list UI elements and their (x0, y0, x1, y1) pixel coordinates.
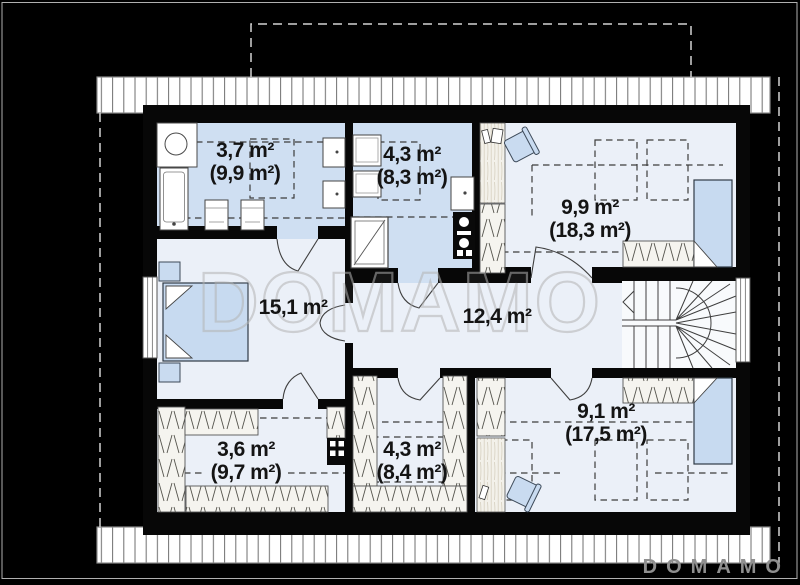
room-area-label-bedroom-bottom-right: 9,1 m² (17,5 m²) (526, 400, 686, 446)
area-value: 9,1 m² (526, 400, 686, 423)
room-area-label-wardrobe-bottom-mid: 4,3 m² (8,4 m²) (343, 438, 481, 484)
room-area-label-hall: 12,4 m² (437, 305, 557, 328)
domamo-logo: DOMAMO (643, 556, 790, 579)
area-value: 3,7 m² (165, 139, 325, 162)
area-value: 15,1 m² (233, 296, 353, 319)
area-total-value: (8,4 m²) (343, 461, 481, 484)
area-total-value: (8,3 m²) (343, 166, 481, 189)
window-right (736, 278, 750, 362)
nightstand-icon (159, 262, 180, 281)
area-value: 4,3 m² (343, 143, 481, 166)
room-area-label-bedroom-left: 15,1 m² (233, 296, 353, 319)
toilet-icon (205, 200, 228, 230)
dresser-icon (623, 241, 694, 267)
room-area-label-bathroom-top-left: 3,7 m² (9,9 m²) (165, 139, 325, 185)
sink-icon (323, 138, 345, 167)
room-area-label-wardrobe-bottom-left: 3,6 m² (9,7 m²) (166, 438, 326, 484)
area-total-value: (9,7 m²) (166, 461, 326, 484)
area-total-value: (17,5 m²) (526, 423, 686, 446)
floor-plan-drawing (0, 0, 800, 585)
window-left (143, 277, 157, 358)
sink-icon (323, 181, 345, 208)
area-value: 12,4 m² (437, 305, 557, 328)
floor-plan-canvas: DOMAMO 3,7 m² (9,9 m²) 4,3 m² (8,3 m²) 9… (0, 0, 800, 585)
wardrobe-icon (477, 378, 505, 436)
desk-icon (477, 438, 505, 512)
area-value: 4,3 m² (343, 438, 481, 461)
area-total-value: (9,9 m²) (165, 162, 325, 185)
room-area-label-bathroom-top-middle: 4,3 m² (8,3 m²) (343, 143, 481, 189)
room-area-label-bedroom-top-right: 9,9 m² (18,3 m²) (510, 196, 670, 242)
area-total-value: (18,3 m²) (510, 219, 670, 242)
bidet-icon (241, 200, 264, 230)
wardrobe-icon (480, 204, 505, 273)
area-value: 9,9 m² (510, 196, 670, 219)
nightstand-icon (159, 363, 180, 382)
floor-staircase (622, 281, 736, 368)
area-value: 3,6 m² (166, 438, 326, 461)
